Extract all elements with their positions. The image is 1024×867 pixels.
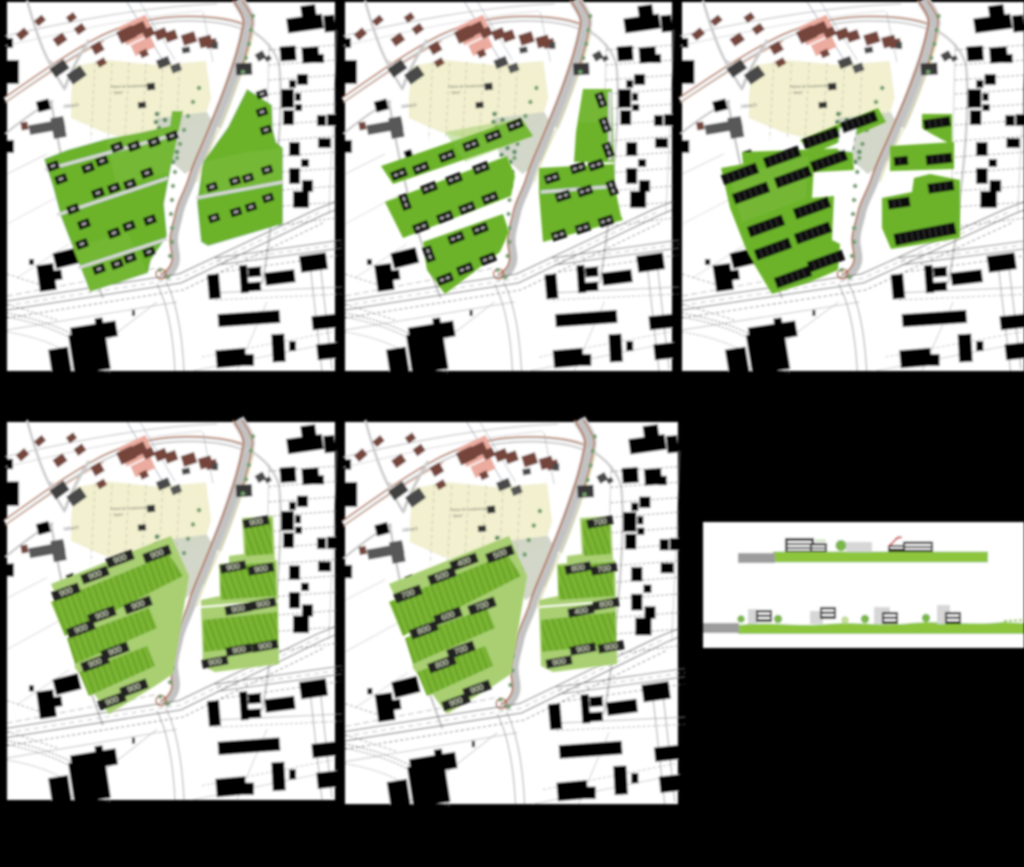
svg-text:"BiNO": "BiNO" (452, 514, 464, 518)
svg-text:"BiNO": "BiNO" (451, 91, 462, 95)
svg-text:"BiNO": "BiNO" (113, 513, 124, 517)
svg-text:"BiNO": "BiNO" (113, 91, 124, 95)
svg-text:"BiNO": "BiNO" (792, 91, 804, 95)
